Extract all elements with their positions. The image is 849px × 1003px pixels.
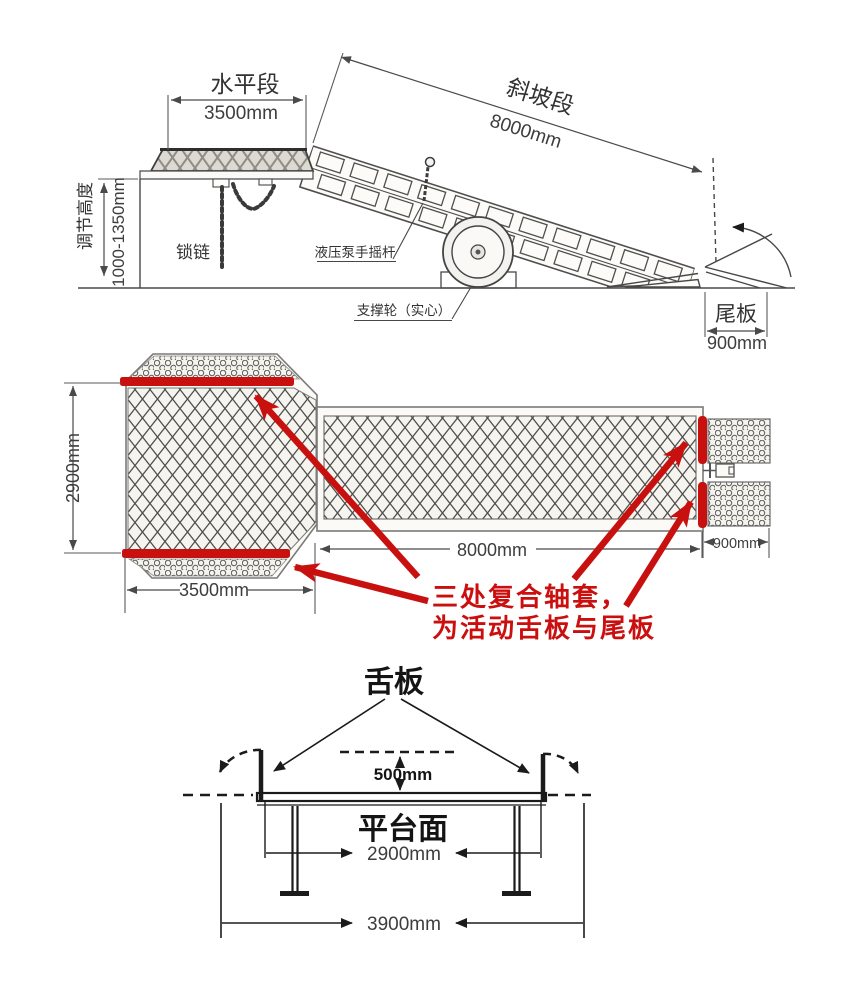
plan-ramp xyxy=(317,407,703,531)
label-horizontal-section: 水平段 xyxy=(211,71,280,97)
dim-plan-ramp-value: 8000mm xyxy=(457,540,527,560)
side-view-elevation: 水平段 3500mm 斜坡段 8000mm 调节高度 1000-1350mm 锁… xyxy=(76,53,795,353)
dim-adjustable-height: 调节高度 1000-1350mm xyxy=(76,177,138,287)
red-bushing-bar-tail-bottom xyxy=(698,482,707,528)
label-adjustable-height: 调节高度 xyxy=(76,182,95,250)
ramp-diagram: 水平段 3500mm 斜坡段 8000mm 调节高度 1000-1350mm 锁… xyxy=(0,0,849,1003)
label-tail-plate: 尾板 xyxy=(715,303,757,326)
dim-adjustable-height-value: 1000-1350mm xyxy=(109,177,128,287)
label-pump: 液压泵手摇杆 xyxy=(315,245,397,262)
dim-plan-platform-value: 3500mm xyxy=(179,580,249,600)
top-view-plan: 2900mm 3500mm 8000mm 900mm xyxy=(63,354,770,643)
dim-section-outer-value: 3900mm xyxy=(367,914,441,935)
horizontal-deck xyxy=(140,149,313,288)
dim-plan-width: 2900mm xyxy=(63,383,121,553)
dim-tail-plate-value: 900mm xyxy=(707,333,767,353)
bushing-note-line1: 三处复合轴套， xyxy=(432,582,628,612)
dim-horizontal-section: 水平段 3500mm xyxy=(168,71,306,150)
red-bushing-bar-platform-top xyxy=(120,377,294,386)
label-platform-surface: 平台面 xyxy=(358,812,448,846)
dim-tail-plate: 尾板 900mm xyxy=(705,292,767,353)
label-tongue-plate: 舌板 xyxy=(364,666,424,699)
dim-plan-tail-value: 900mm xyxy=(713,536,761,552)
svg-text:液压泵手摇杆: 液压泵手摇杆 xyxy=(315,245,396,260)
red-bushing-bar-tail-top xyxy=(698,416,707,464)
cross-section-view: 舌板 500mm 平台面 xyxy=(183,666,591,938)
label-lock-chain: 锁链 xyxy=(176,243,210,262)
plan-tail-plates xyxy=(698,416,770,528)
plan-platform xyxy=(120,354,317,578)
dim-slope-section-value: 8000mm xyxy=(487,111,564,153)
dim-section-inner-value: 2900mm xyxy=(367,844,441,865)
dim-plan-width-value: 2900mm xyxy=(63,433,83,503)
dim-slope-section: 斜坡段 8000mm xyxy=(313,53,702,172)
svg-text:支撑轮（实心）: 支撑轮（实心） xyxy=(357,303,452,318)
support-wheel-circles xyxy=(443,217,513,287)
dim-plan-tail: 900mm xyxy=(703,528,769,558)
dim-horizontal-section-value: 3500mm xyxy=(204,103,278,124)
ramp-diagram-page: 水平段 3500mm 斜坡段 8000mm 调节高度 1000-1350mm 锁… xyxy=(0,0,849,1003)
bushing-note-line2: 为活动舌板与尾板 xyxy=(432,613,656,643)
dim-drop-value: 500mm xyxy=(374,765,433,784)
label-support-wheel: 支撑轮（实心） xyxy=(354,287,471,321)
tail-lock-mechanism xyxy=(703,463,734,478)
red-bushing-bar-platform-bottom xyxy=(122,549,290,558)
lock-chains xyxy=(222,184,274,267)
